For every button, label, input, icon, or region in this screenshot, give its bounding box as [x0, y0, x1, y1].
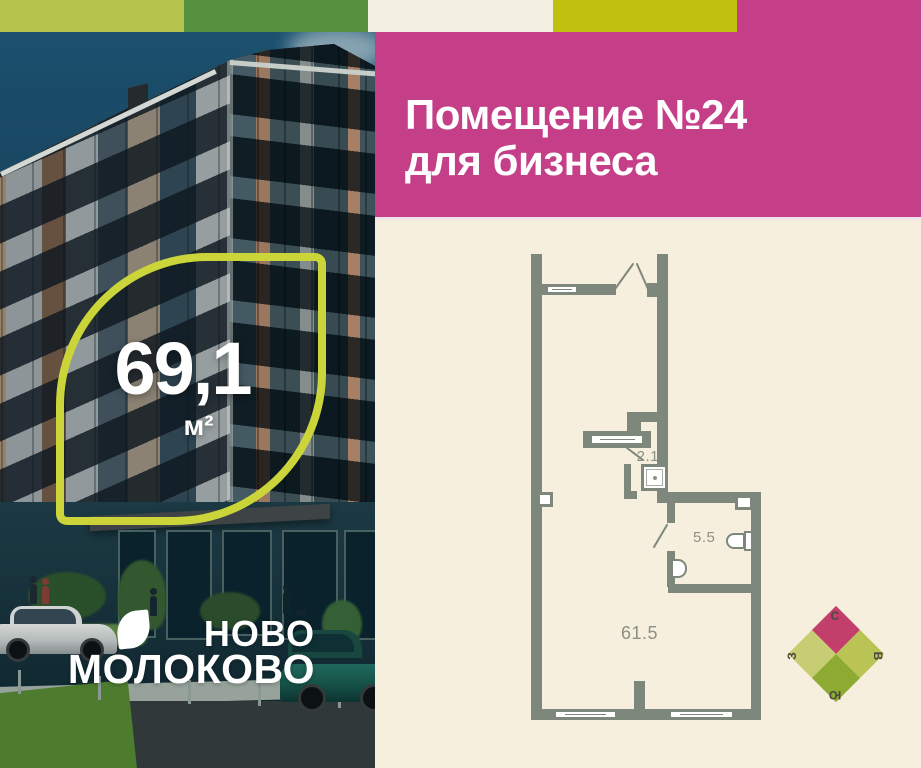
person-silhouette [30, 584, 37, 604]
banner-stripe [737, 0, 921, 32]
car-wheel [6, 638, 30, 662]
banner-stripe [553, 0, 737, 32]
listing-title-line1: Помещение №24 [405, 94, 747, 136]
area-value: 69,1 [50, 332, 315, 406]
compass-letter-west: З [786, 648, 800, 664]
banner-stripe [0, 0, 184, 32]
compass-letter-north: С [827, 610, 843, 624]
listing-panel: Помещение №24 для бизнеса [375, 32, 921, 768]
area-unit: м² [50, 410, 331, 442]
listing-title-line2: для бизнеса [405, 140, 657, 182]
brand-name-line2: МОЛОКОВО [68, 649, 315, 690]
listing-header: Помещение №24 для бизнеса [375, 32, 921, 217]
banner-stripe [184, 0, 368, 32]
top-color-banner [0, 0, 921, 32]
room-label-closet: 2.1 [625, 449, 659, 464]
banner-stripe [368, 0, 552, 32]
person-silhouette [150, 596, 157, 616]
person-silhouette [283, 592, 290, 614]
person-silhouette [42, 586, 49, 604]
room-label-bathroom: 5.5 [693, 530, 727, 545]
floor-plan: 2.1 5.5 61.5 С В Ю З [375, 220, 921, 768]
compass-letter-south: Ю [827, 687, 843, 701]
room-label-main: 61.5 [621, 624, 667, 642]
fence-post [18, 670, 21, 694]
car-wheel [360, 684, 375, 712]
car-glass [14, 609, 76, 624]
compass-letter-east: В [870, 648, 884, 664]
building-photo-panel: 69,1 м² НОВО МОЛОКОВО [0, 32, 375, 768]
real-estate-promo-card: 69,1 м² НОВО МОЛОКОВО Помещение №24 для … [0, 0, 921, 768]
